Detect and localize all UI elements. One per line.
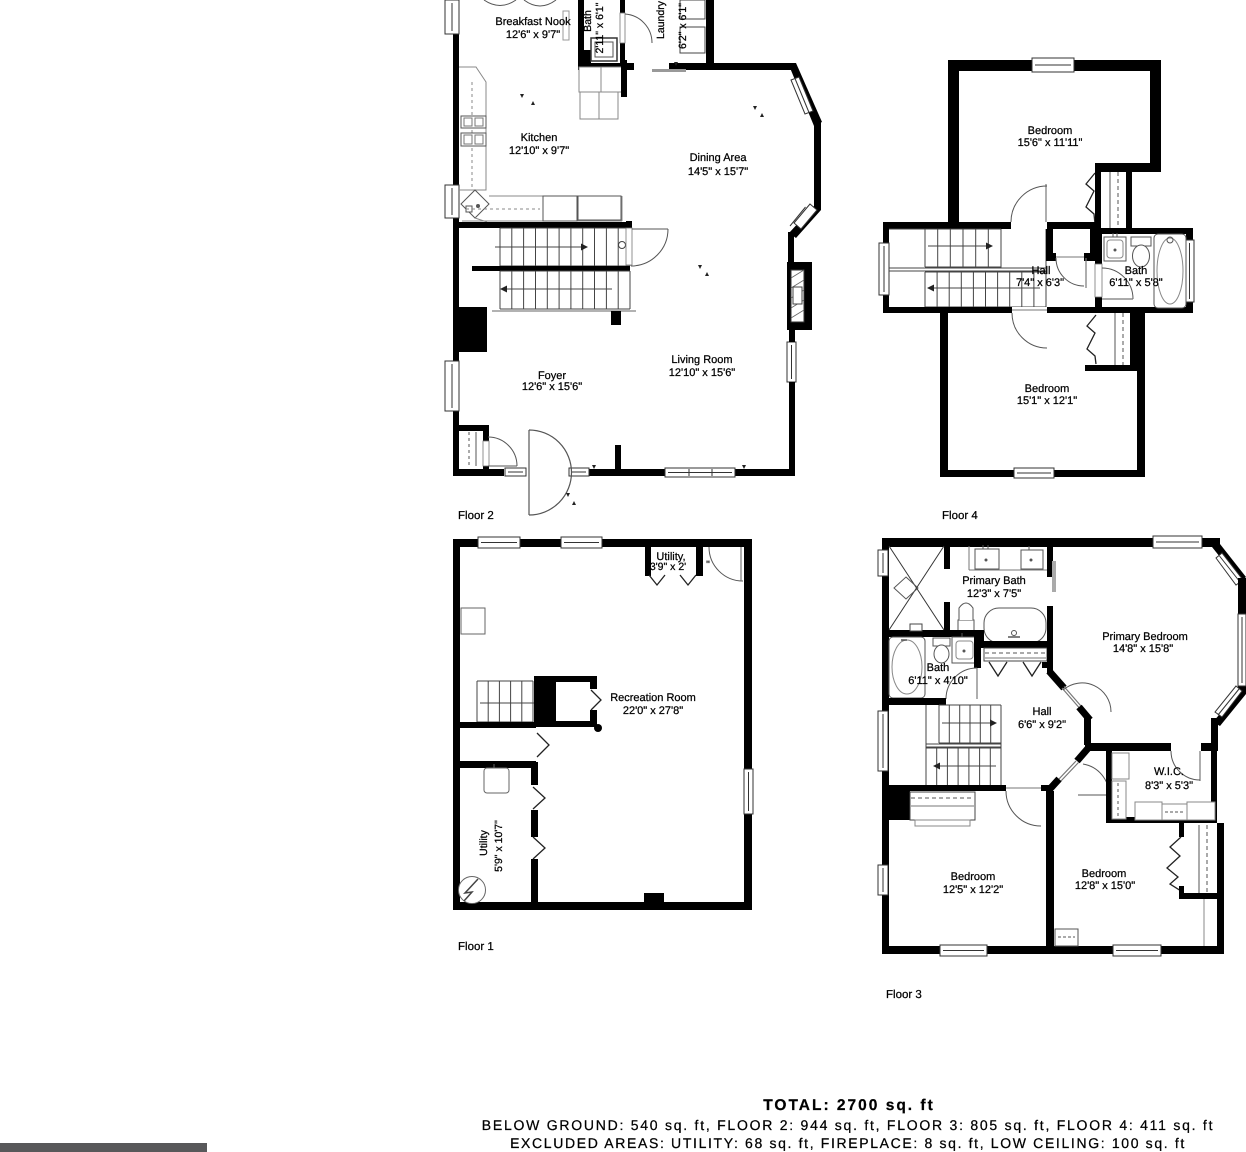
svg-text:Floor 4: Floor 4: [942, 510, 978, 522]
svg-text:Breakfast Nook: Breakfast Nook: [495, 16, 571, 28]
svg-text:2'11" x 6'1": 2'11" x 6'1": [594, 2, 606, 53]
svg-text:Floor 2: Floor 2: [458, 510, 494, 522]
svg-text:Floor 1: Floor 1: [458, 941, 494, 953]
svg-text:12'5" x 12'2": 12'5" x 12'2": [943, 884, 1003, 896]
svg-text:Living Room: Living Room: [671, 354, 732, 366]
svg-text:TOTAL: 2700 sq. ft: TOTAL: 2700 sq. ft: [763, 1097, 935, 1114]
svg-text:6'11" x 4'10": 6'11" x 4'10": [908, 675, 968, 687]
svg-text:6'6" x 9'2": 6'6" x 9'2": [1018, 719, 1066, 731]
svg-text:12'10" x 9'7": 12'10" x 9'7": [509, 145, 569, 157]
svg-text:EXCLUDED AREAS: UTILITY: 68 sq: EXCLUDED AREAS: UTILITY: 68 sq. ft, FIRE…: [510, 1135, 1186, 1151]
svg-text:12'3" x 7'5": 12'3" x 7'5": [967, 588, 1021, 600]
svg-text:14'5" x 15'7": 14'5" x 15'7": [688, 166, 748, 178]
svg-text:Dining Area: Dining Area: [690, 152, 748, 164]
svg-text:8'3" x 5'3": 8'3" x 5'3": [1145, 780, 1193, 792]
svg-text:Recreation Room: Recreation Room: [610, 692, 696, 704]
svg-text:Laundry: Laundry: [655, 0, 667, 39]
svg-text:12'8" x 15'0": 12'8" x 15'0": [1075, 880, 1135, 892]
svg-text:Bedroom: Bedroom: [1082, 868, 1127, 880]
svg-text:Primary Bath: Primary Bath: [962, 575, 1026, 587]
svg-text:": ": [706, 559, 710, 571]
svg-text:Kitchen: Kitchen: [521, 132, 558, 144]
svg-text:Primary Bedroom: Primary Bedroom: [1102, 631, 1188, 643]
svg-text:Utility: Utility: [478, 829, 490, 855]
svg-text:BELOW GROUND: 540 sq. ft, FLOO: BELOW GROUND: 540 sq. ft, FLOOR 2: 944 s…: [482, 1117, 1214, 1133]
svg-text:Bedroom: Bedroom: [1028, 125, 1073, 137]
svg-text:Bath: Bath: [927, 662, 950, 674]
svg-text:6'11" x 5'8": 6'11" x 5'8": [1109, 277, 1162, 289]
svg-text:22'0" x 27'8": 22'0" x 27'8": [623, 705, 683, 717]
svg-text:Bedroom: Bedroom: [951, 871, 996, 883]
svg-text:12'6" x 15'6": 12'6" x 15'6": [522, 381, 582, 393]
svg-text:Bedroom: Bedroom: [1025, 383, 1070, 395]
svg-text:W.I.C.: W.I.C.: [1154, 766, 1184, 778]
svg-text:Hall: Hall: [1032, 265, 1051, 277]
svg-text:Bath: Bath: [1125, 265, 1148, 277]
svg-text:5'9" x 10'7": 5'9" x 10'7": [493, 820, 505, 872]
svg-text:7'4" x 6'3": 7'4" x 6'3": [1016, 277, 1064, 289]
svg-text:3'9" x 2': 3'9" x 2': [650, 561, 686, 573]
svg-text:Bath: Bath: [582, 10, 594, 32]
svg-text:Floor 3: Floor 3: [886, 989, 922, 1001]
svg-text:6'2" x 6'1": 6'2" x 6'1": [677, 3, 689, 49]
svg-text:Hall: Hall: [1033, 706, 1052, 718]
svg-text:15'1" x 12'1": 15'1" x 12'1": [1017, 395, 1077, 407]
svg-text:15'6" x 11'11": 15'6" x 11'11": [1018, 137, 1083, 149]
svg-text:12'6" x 9'7": 12'6" x 9'7": [506, 29, 560, 41]
svg-text:12'10" x 15'6": 12'10" x 15'6": [669, 367, 736, 379]
svg-text:14'8" x 15'8": 14'8" x 15'8": [1113, 643, 1173, 655]
